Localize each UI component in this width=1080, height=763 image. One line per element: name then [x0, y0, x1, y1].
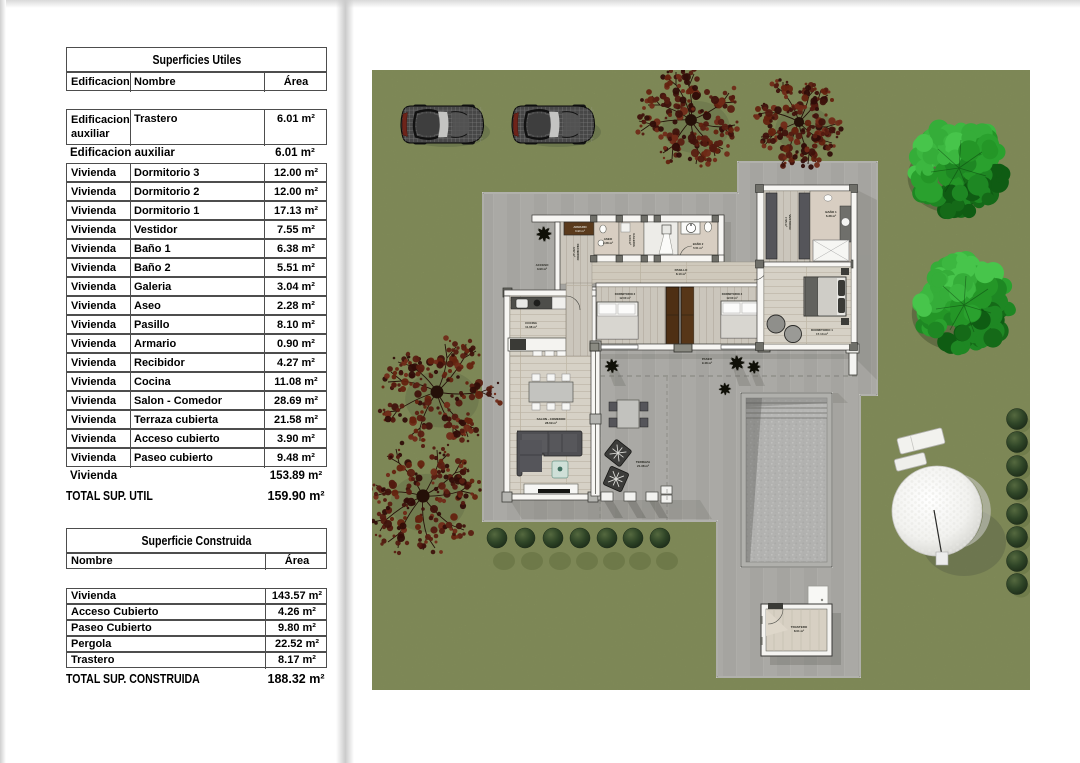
svg-text:8.01 m²: 8.01 m²	[794, 629, 804, 633]
svg-text:0.90 m²: 0.90 m²	[575, 229, 585, 233]
svg-text:3.90 m²: 3.90 m²	[537, 267, 547, 271]
svg-text:12.00 m²: 12.00 m²	[619, 296, 630, 300]
svg-text:5.51 m²: 5.51 m²	[693, 246, 703, 250]
svg-text:7.55 m²: 7.55 m²	[784, 217, 788, 227]
svg-text:11.08 m²: 11.08 m²	[525, 325, 537, 329]
svg-text:8.10 m²: 8.10 m²	[676, 272, 686, 276]
svg-text:28.69 m²: 28.69 m²	[545, 421, 557, 425]
svg-text:4.57 m²: 4.57 m²	[572, 247, 576, 257]
svg-text:3.04 m²: 3.04 m²	[628, 235, 632, 245]
svg-text:9.48 m²: 9.48 m²	[702, 361, 712, 365]
svg-text:6.38 m²: 6.38 m²	[826, 214, 836, 218]
svg-text:21.38 m²: 21.38 m²	[637, 464, 649, 468]
svg-text:17.13 m²: 17.13 m²	[816, 332, 828, 336]
svg-text:12.00 m²: 12.00 m²	[726, 296, 737, 300]
svg-text:2.28 m²: 2.28 m²	[603, 241, 613, 245]
